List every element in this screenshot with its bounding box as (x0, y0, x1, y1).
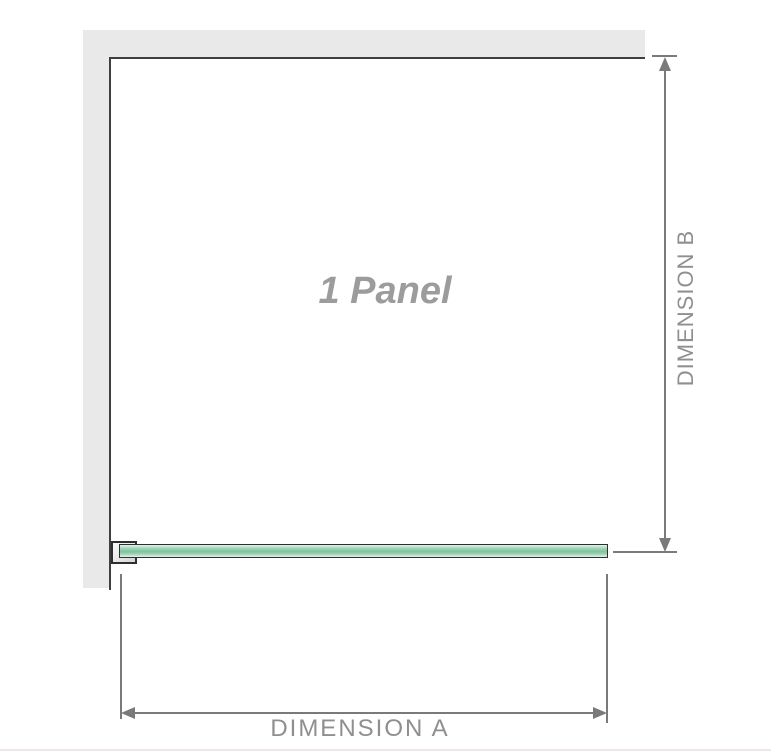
wall-inner-edge-line (109, 57, 645, 590)
arrowhead-down-icon (659, 538, 671, 552)
dimension-b-label: DIMENSION B (673, 223, 699, 393)
glass-panel (119, 544, 608, 558)
panel-count-label: 1 Panel (285, 270, 485, 313)
diagram-canvas: DIMENSION B DIMENSION A 1 Panel (0, 0, 771, 755)
arrowhead-up-icon (659, 57, 671, 71)
dimension-a-arrow-line (128, 712, 600, 714)
dimension-a-label: DIMENSION A (240, 715, 480, 743)
arrowhead-left-icon (121, 707, 135, 719)
dimension-b-arrow-line (664, 60, 666, 550)
arrowhead-right-icon (593, 707, 607, 719)
wall-left-strip (83, 58, 110, 588)
wall-top-band (83, 30, 645, 58)
extension-line-left (120, 574, 122, 719)
bottom-baseline (0, 749, 771, 751)
extension-line-right (606, 574, 608, 723)
